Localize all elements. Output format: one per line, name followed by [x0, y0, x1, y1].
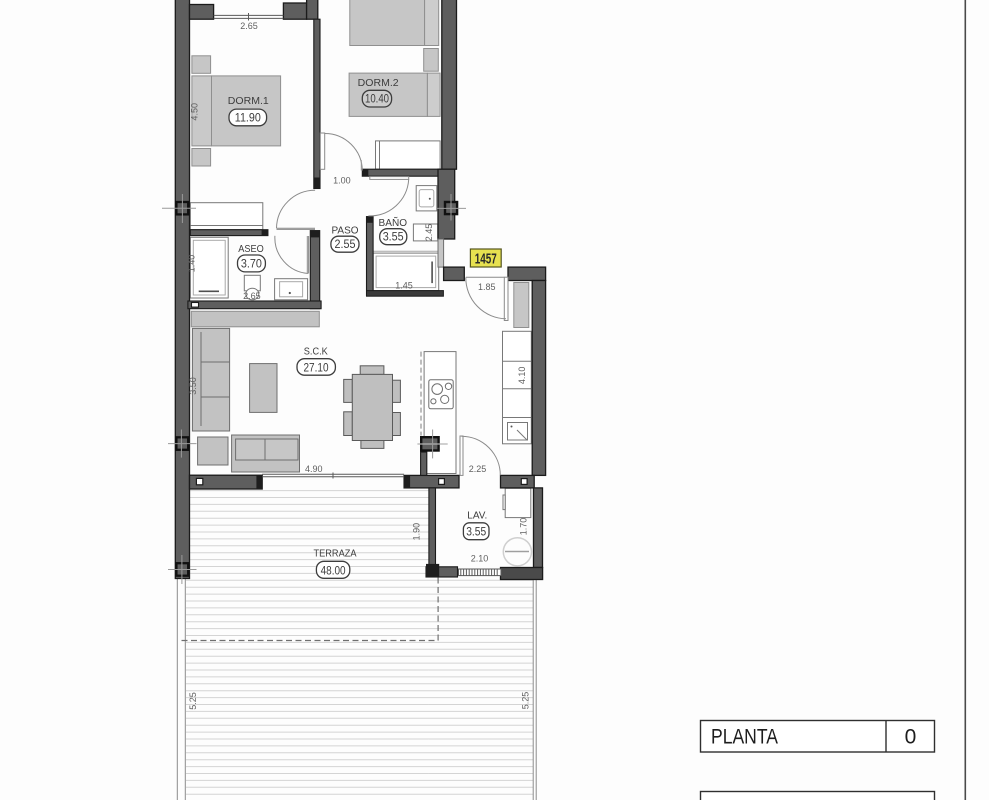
svg-text:11.90: 11.90 [235, 113, 261, 125]
svg-text:S.C.K: S.C.K [304, 346, 328, 357]
svg-text:TERRAZA: TERRAZA [314, 548, 357, 559]
svg-text:3.55: 3.55 [383, 232, 404, 244]
svg-text:10.40: 10.40 [365, 94, 389, 106]
svg-text:LAV.: LAV. [467, 511, 487, 522]
svg-text:1457: 1457 [475, 250, 497, 267]
svg-text:5.25: 5.25 [521, 692, 531, 710]
svg-text:4.50: 4.50 [190, 103, 200, 121]
svg-text:2.25: 2.25 [469, 464, 487, 474]
svg-text:4.10: 4.10 [517, 367, 527, 385]
svg-text:2.65: 2.65 [243, 291, 261, 301]
svg-text:0: 0 [905, 726, 917, 749]
svg-text:27.10: 27.10 [304, 362, 329, 374]
svg-text:2.10: 2.10 [471, 554, 489, 564]
svg-text:3.50: 3.50 [188, 377, 198, 395]
svg-text:DORM.2: DORM.2 [358, 78, 399, 89]
svg-text:4.90: 4.90 [305, 464, 323, 474]
svg-text:3.70: 3.70 [241, 259, 262, 271]
svg-text:1.45: 1.45 [395, 281, 413, 291]
svg-text:BAÑO: BAÑO [379, 216, 408, 229]
svg-text:PLANTA: PLANTA [711, 726, 778, 749]
svg-text:DORM.1: DORM.1 [228, 96, 269, 107]
svg-text:2.65: 2.65 [240, 21, 258, 31]
svg-text:3.55: 3.55 [466, 526, 486, 538]
svg-text:1.70: 1.70 [518, 518, 528, 536]
svg-text:2.55: 2.55 [335, 239, 356, 251]
svg-text:ASEO: ASEO [238, 244, 264, 255]
svg-text:2.45: 2.45 [424, 224, 434, 242]
svg-text:1.85: 1.85 [478, 282, 496, 292]
svg-text:5.25: 5.25 [188, 692, 198, 710]
svg-text:1.90: 1.90 [411, 523, 421, 541]
svg-text:1.00: 1.00 [333, 176, 351, 186]
svg-text:1.40: 1.40 [187, 255, 197, 273]
svg-text:PASO: PASO [332, 226, 359, 237]
svg-text:48.00: 48.00 [321, 566, 346, 578]
